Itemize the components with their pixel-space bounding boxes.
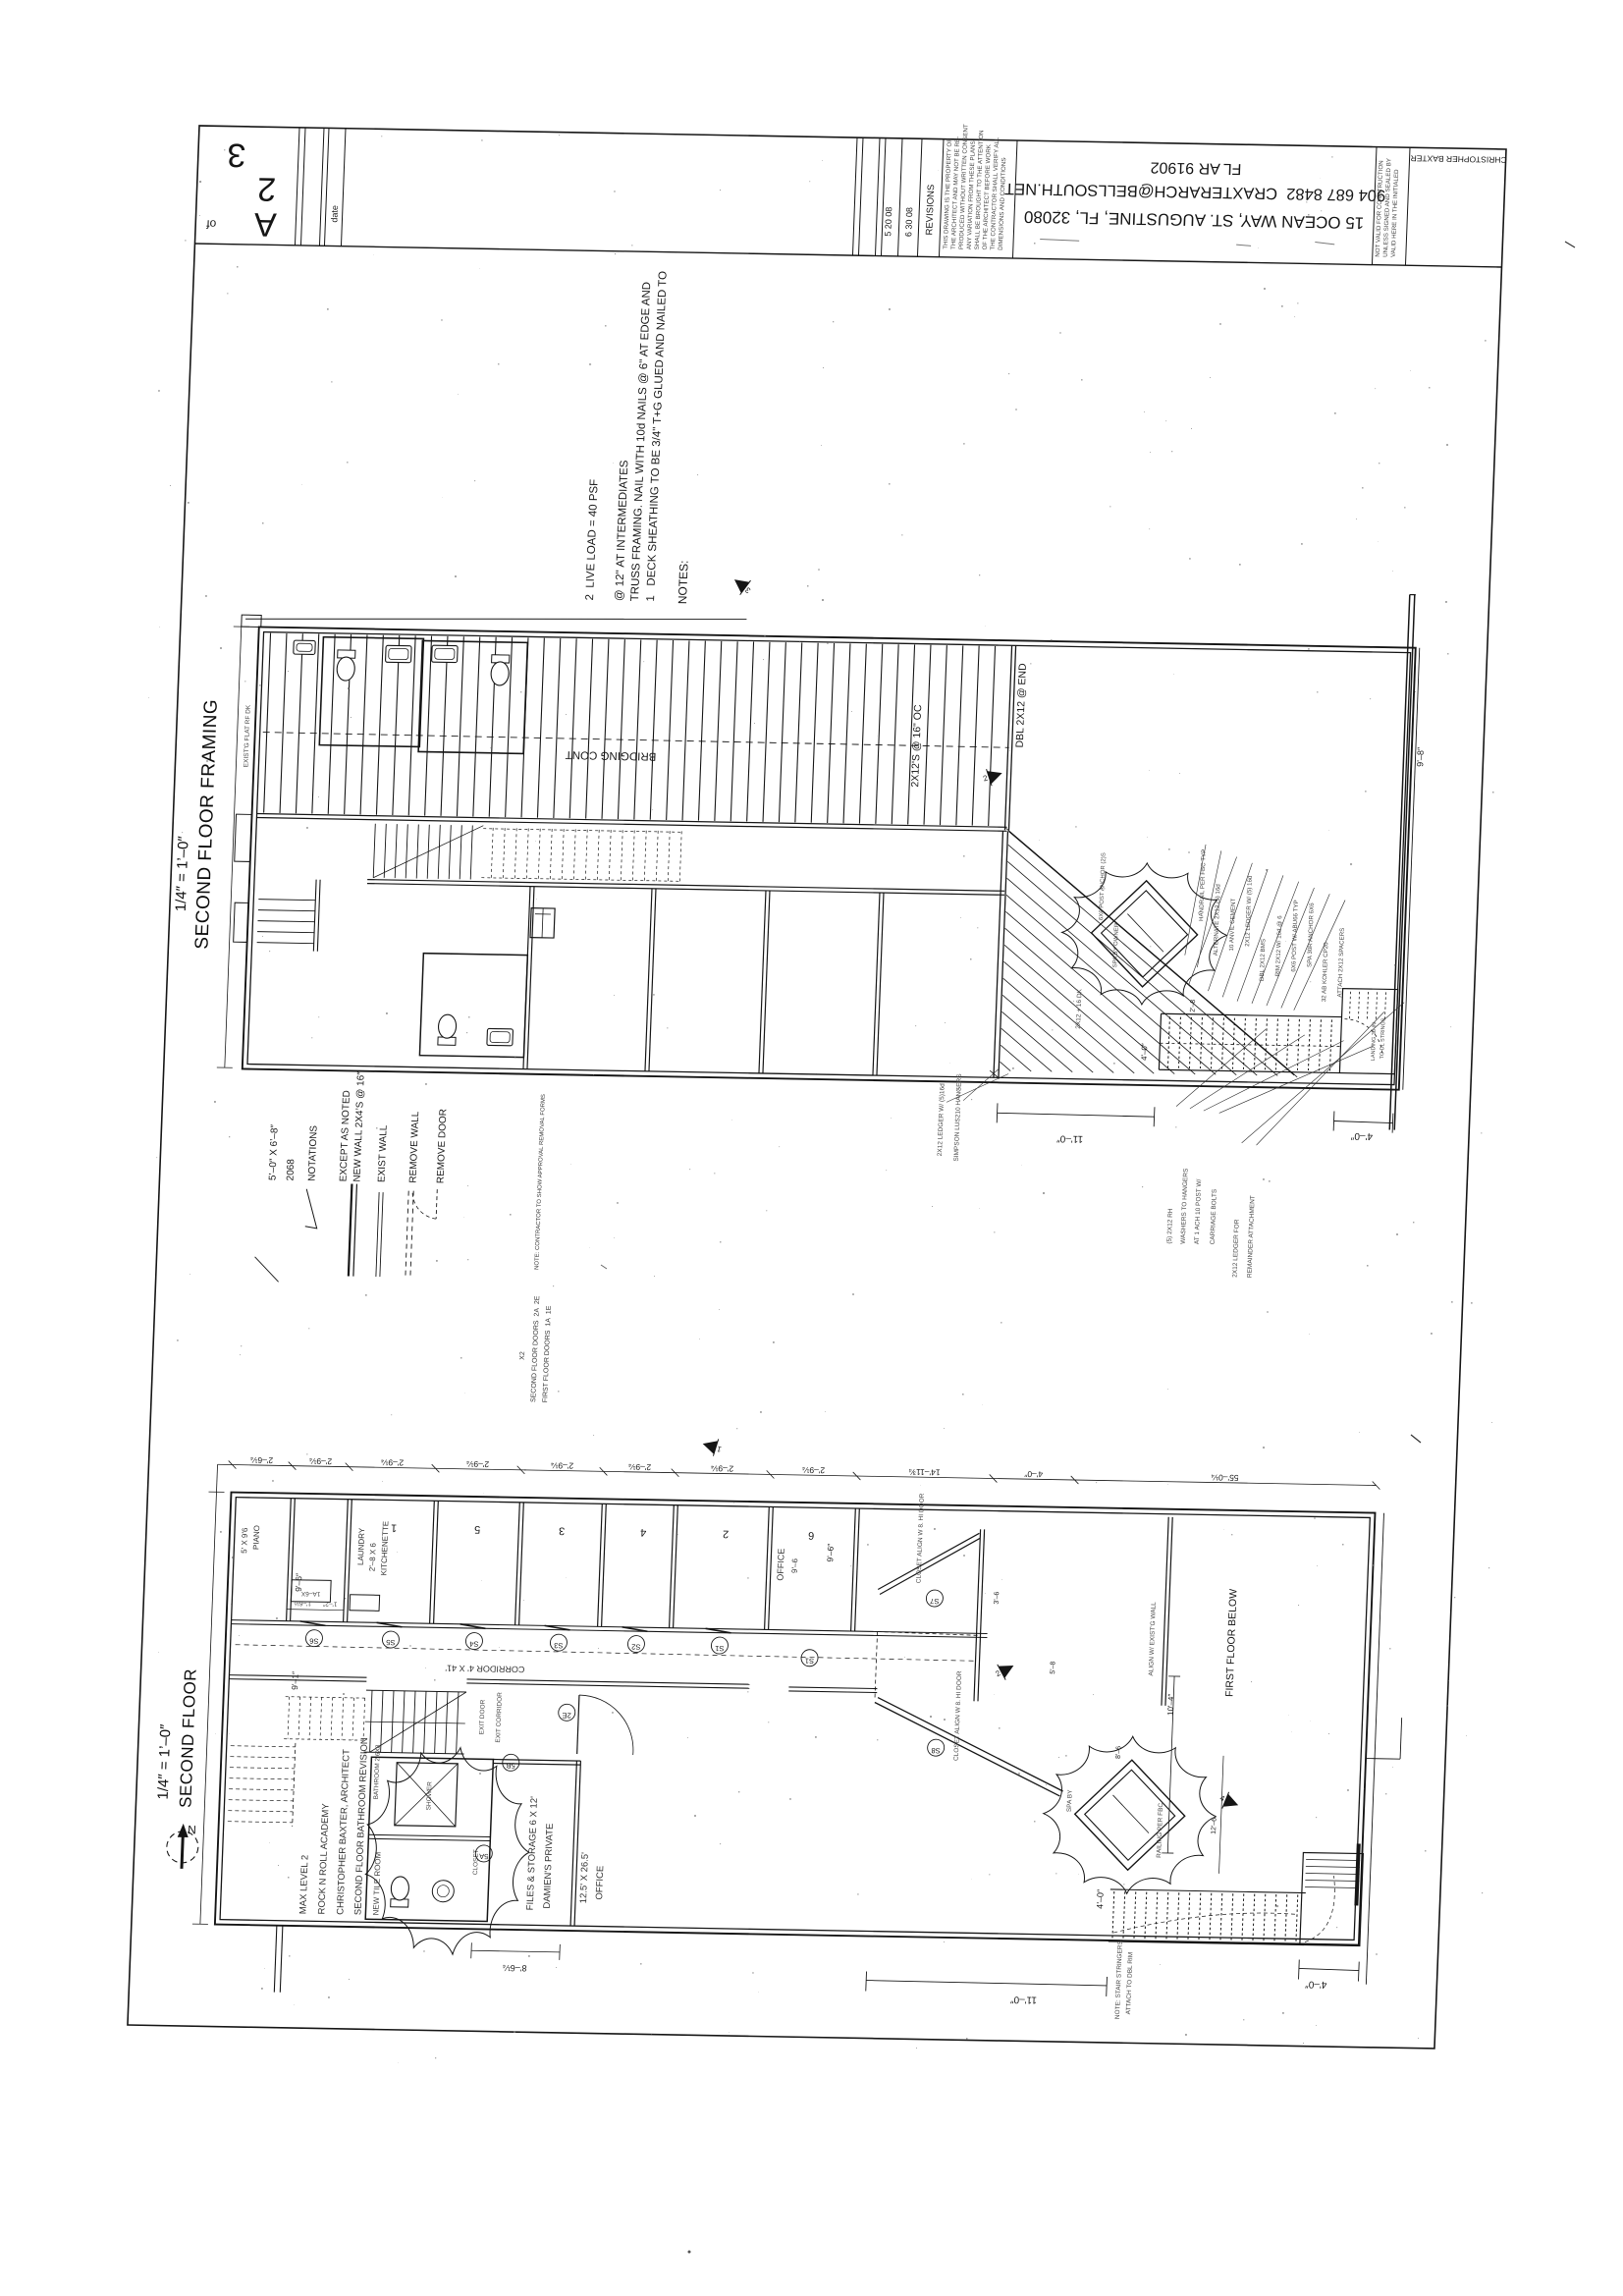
svg-text:4: 4 xyxy=(640,1526,647,1538)
svg-text:9'–6: 9'–6 xyxy=(790,1558,800,1573)
svg-text:3: 3 xyxy=(559,1525,566,1537)
svg-text:11'–0″: 11'–0″ xyxy=(1009,1994,1037,2004)
svg-text:EXIT DOOR: EXIT DOOR xyxy=(478,1699,486,1734)
svg-text:2'–8: 2'–8 xyxy=(1190,1000,1197,1012)
svg-text:of: of xyxy=(205,217,216,231)
svg-text:X2: X2 xyxy=(519,1351,526,1360)
svg-text:FL AR 91902: FL AR 91902 xyxy=(1150,158,1242,177)
svg-text:9'–6″: 9'–6″ xyxy=(294,1573,304,1592)
svg-text:1'–6½: 1'–6½ xyxy=(294,1600,311,1608)
svg-text:8'–6¼: 8'–6¼ xyxy=(503,1963,527,1973)
svg-text:REVISIONS: REVISIONS xyxy=(924,185,937,236)
svg-text:4'–0″: 4'–0″ xyxy=(1305,1979,1327,1990)
svg-text:5B: 5B xyxy=(506,1761,515,1770)
svg-text:S6: S6 xyxy=(309,1637,319,1646)
svg-text:S3: S3 xyxy=(554,1641,564,1650)
svg-text:OFFICE: OFFICE xyxy=(594,1866,606,1900)
svg-text:S8: S8 xyxy=(931,1746,941,1755)
svg-text:1/4″ = 1’–0″: 1/4″ = 1’–0″ xyxy=(155,1723,175,1800)
svg-text:2'–9¼: 2'–9¼ xyxy=(550,1460,573,1470)
svg-text:1: 1 xyxy=(391,1521,398,1533)
svg-text:S7: S7 xyxy=(930,1597,940,1606)
svg-text:CLOSET: CLOSET xyxy=(472,1849,480,1875)
svg-text:CORRIDOR 4' X 41': CORRIDOR 4' X 41' xyxy=(445,1664,525,1674)
svg-text:SHOWER: SHOWER xyxy=(425,1781,433,1811)
svg-text:2: 2 xyxy=(723,1528,730,1540)
svg-text:12.5' X 26.5': 12.5' X 26.5' xyxy=(578,1852,591,1904)
svg-text:S1: S1 xyxy=(715,1644,725,1653)
svg-text:4'–0″: 4'–0″ xyxy=(1350,1130,1373,1141)
svg-text:2068: 2068 xyxy=(286,1159,298,1181)
svg-text:5'–8: 5'–8 xyxy=(1050,1662,1056,1674)
svg-text:3: 3 xyxy=(227,137,246,174)
svg-text:2'–9¼: 2'–9¼ xyxy=(627,1462,651,1472)
svg-text:5A: 5A xyxy=(479,1852,489,1861)
svg-text:6: 6 xyxy=(808,1529,815,1541)
svg-text:(5) 2X12 RH: (5) 2X12 RH xyxy=(1166,1208,1174,1244)
svg-text:S1: S1 xyxy=(805,1657,815,1666)
svg-text:5' X 9'6: 5' X 9'6 xyxy=(240,1527,249,1554)
svg-text:9'–6″: 9'–6″ xyxy=(825,1544,836,1562)
svg-text:PIANO: PIANO xyxy=(251,1525,261,1550)
svg-text:2'–9¼: 2'–9¼ xyxy=(380,1457,404,1467)
svg-text:10'–4″: 10'–4″ xyxy=(1166,1694,1176,1716)
svg-text:4'–0″: 4'–0″ xyxy=(1095,1888,1106,1909)
svg-text:5 20 08: 5 20 08 xyxy=(883,207,893,237)
svg-text:12'–6: 12'–6 xyxy=(1211,1818,1218,1834)
svg-text:14'–11¾: 14'–11¾ xyxy=(908,1467,941,1478)
svg-text:4'–0″: 4'–0″ xyxy=(1140,1043,1150,1061)
svg-text:OFFICE: OFFICE xyxy=(775,1549,785,1581)
svg-text:N: N xyxy=(188,1823,196,1836)
svg-text:1A–6X: 1A–6X xyxy=(300,1590,320,1597)
svg-text:2'–9¼: 2'–9¼ xyxy=(308,1456,332,1466)
svg-text:SPA BY: SPA BY xyxy=(1066,1789,1074,1812)
svg-text:9'–1″: 9'–1″ xyxy=(290,1671,300,1690)
svg-text:2: 2 xyxy=(256,170,276,207)
svg-text:S4: S4 xyxy=(469,1640,479,1649)
svg-text:55'–0¼: 55'–0¼ xyxy=(1211,1472,1239,1483)
svg-text:1/4″ = 1’–0″: 1/4″ = 1’–0″ xyxy=(173,835,192,911)
svg-text:MAX LEVEL 2: MAX LEVEL 2 xyxy=(298,1855,310,1915)
svg-text:NOTATIONS: NOTATIONS xyxy=(307,1125,320,1181)
svg-text:2'–9¼: 2'–9¼ xyxy=(465,1459,489,1469)
svg-text:2'–6¼: 2'–6¼ xyxy=(249,1455,273,1465)
svg-text:A: A xyxy=(253,205,277,243)
svg-text:NOTES:: NOTES: xyxy=(676,560,691,604)
svg-text:S2: S2 xyxy=(631,1642,641,1651)
svg-text:11'–0″: 11'–0″ xyxy=(1056,1132,1084,1143)
svg-text:2'–9¼: 2'–9¼ xyxy=(801,1465,825,1475)
svg-text:2'–9¼: 2'–9¼ xyxy=(710,1463,733,1473)
svg-text:date: date xyxy=(329,205,340,223)
svg-text:8'–6: 8'–6 xyxy=(1115,1746,1122,1759)
svg-text:4'–0″: 4'–0″ xyxy=(1024,1469,1043,1479)
svg-text:5’–0″ X 6’–8″: 5’–0″ X 6’–8″ xyxy=(268,1123,281,1180)
svg-text:3'–6: 3'–6 xyxy=(994,1591,1001,1604)
svg-text:5: 5 xyxy=(474,1523,481,1535)
svg-text:1'–2″: 1'–2″ xyxy=(322,1600,337,1607)
svg-text:LAUNDRY: LAUNDRY xyxy=(356,1527,366,1565)
svg-text:2'–8 X 6: 2'–8 X 6 xyxy=(368,1542,378,1571)
svg-text:S5: S5 xyxy=(386,1638,396,1647)
svg-text:6 30 08: 6 30 08 xyxy=(903,207,914,237)
svg-text:BRIDGING CONT: BRIDGING CONT xyxy=(566,748,657,762)
svg-text:CHRISTOPHER BAXTER: CHRISTOPHER BAXTER xyxy=(1410,153,1506,165)
svg-text:2E: 2E xyxy=(562,1711,571,1720)
svg-text:9'–8″: 9'–8″ xyxy=(1415,746,1426,767)
svg-text:EXIST WALL: EXIST WALL xyxy=(377,1124,390,1182)
